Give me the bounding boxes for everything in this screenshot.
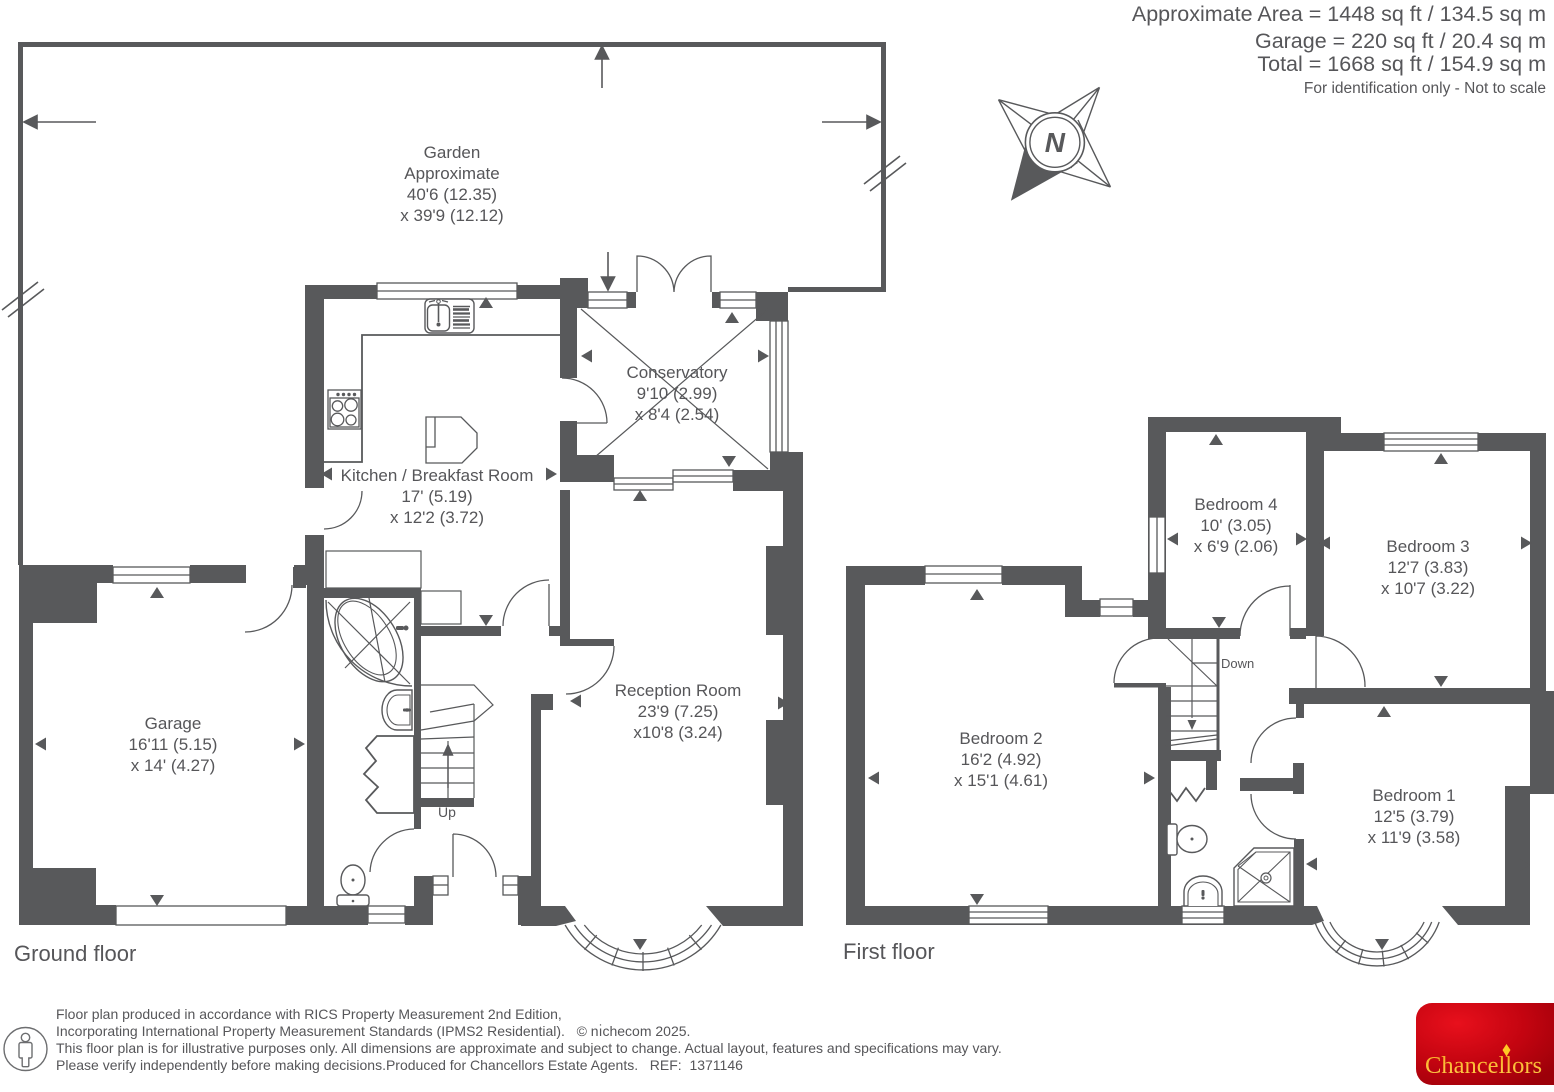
svg-text:x 14' (4.27): x 14' (4.27) [131, 756, 216, 775]
svg-text:Conservatory: Conservatory [626, 363, 728, 382]
svg-text:For identification only - Not: For identification only - Not to scale [1304, 80, 1546, 97]
svg-text:16'2 (4.92): 16'2 (4.92) [961, 750, 1042, 769]
svg-text:Approximate Area = 1448 sq ft: Approximate Area = 1448 sq ft / 134.5 sq… [1132, 2, 1546, 26]
svg-text:12'5 (3.79): 12'5 (3.79) [1374, 807, 1455, 826]
svg-text:Bedroom 4: Bedroom 4 [1194, 495, 1277, 514]
svg-text:x 8'4 (2.54): x 8'4 (2.54) [635, 405, 720, 424]
svg-text:Garage: Garage [145, 714, 202, 733]
svg-text:N: N [1045, 127, 1066, 158]
svg-text:x 10'7 (3.22): x 10'7 (3.22) [1381, 579, 1475, 598]
svg-text:Down: Down [1221, 656, 1254, 671]
svg-text:Approximate: Approximate [404, 164, 499, 183]
svg-text:Garden: Garden [424, 143, 481, 162]
svg-text:23'9 (7.25): 23'9 (7.25) [638, 702, 719, 721]
svg-text:Kitchen / Breakfast Room: Kitchen / Breakfast Room [341, 466, 534, 485]
svg-text:x 39'9 (12.12): x 39'9 (12.12) [400, 206, 503, 225]
svg-text:17' (5.19): 17' (5.19) [401, 487, 472, 506]
svg-text:Incorporating International Pr: Incorporating International Property Mea… [56, 1023, 690, 1039]
svg-text:x 15'1 (4.61): x 15'1 (4.61) [954, 771, 1048, 790]
svg-text:12'7 (3.83): 12'7 (3.83) [1388, 558, 1469, 577]
svg-text:Ground floor: Ground floor [14, 941, 136, 966]
svg-text:Chancellors: Chancellors [1425, 1052, 1542, 1079]
svg-text:Up: Up [438, 804, 456, 820]
svg-text:16'11 (5.15): 16'11 (5.15) [129, 735, 218, 754]
svg-text:Bedroom 2: Bedroom 2 [959, 729, 1042, 748]
svg-text:Please verify independently be: Please verify independently before makin… [56, 1057, 743, 1073]
svg-text:x 6'9 (2.06): x 6'9 (2.06) [1194, 537, 1279, 556]
svg-text:This floor plan is for illustr: This floor plan is for illustrative purp… [56, 1040, 1002, 1056]
svg-text:Garage = 220 sq ft / 20.4 sq m: Garage = 220 sq ft / 20.4 sq m [1255, 29, 1546, 53]
svg-text:40'6 (12.35): 40'6 (12.35) [407, 185, 497, 204]
svg-text:Floor plan produced in accorda: Floor plan produced in accordance with R… [56, 1006, 562, 1022]
svg-text:10' (3.05): 10' (3.05) [1200, 516, 1271, 535]
svg-text:9'10 (2.99): 9'10 (2.99) [637, 384, 718, 403]
svg-text:x 12'2 (3.72): x 12'2 (3.72) [390, 508, 484, 527]
svg-text:x 11'9 (3.58): x 11'9 (3.58) [1368, 828, 1461, 847]
svg-text:Total = 1668 sq ft / 154.9 sq: Total = 1668 sq ft / 154.9 sq m [1257, 52, 1546, 76]
svg-text:Bedroom 1: Bedroom 1 [1372, 786, 1455, 805]
svg-text:x10'8 (3.24): x10'8 (3.24) [633, 723, 722, 742]
svg-text:Bedroom 3: Bedroom 3 [1386, 537, 1469, 556]
svg-text:First floor: First floor [843, 939, 935, 964]
svg-text:Reception Room: Reception Room [615, 681, 742, 700]
